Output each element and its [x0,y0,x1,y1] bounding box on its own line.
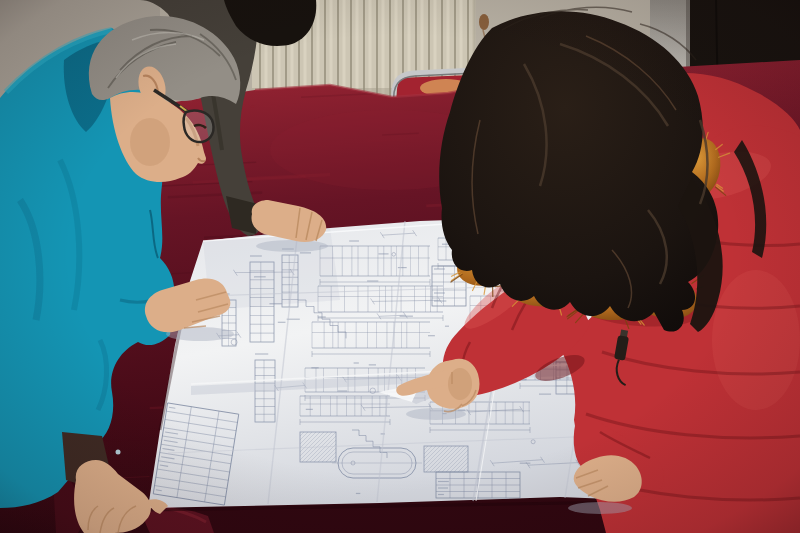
photo-vignette [0,0,800,533]
photo-of-blueprint-review [0,0,800,533]
scene-canvas [0,0,800,533]
